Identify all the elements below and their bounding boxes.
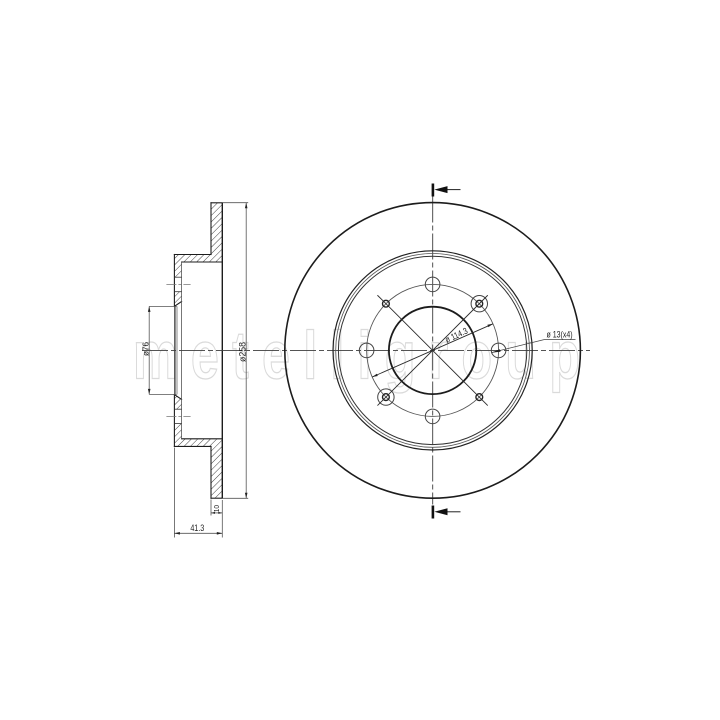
svg-text:ø76: ø76: [142, 341, 151, 356]
svg-text:10: 10: [214, 505, 222, 512]
svg-text:ø258: ø258: [238, 342, 248, 362]
svg-text:41.3: 41.3: [190, 523, 204, 533]
svg-text:ø 13(x4): ø 13(x4): [547, 330, 573, 340]
